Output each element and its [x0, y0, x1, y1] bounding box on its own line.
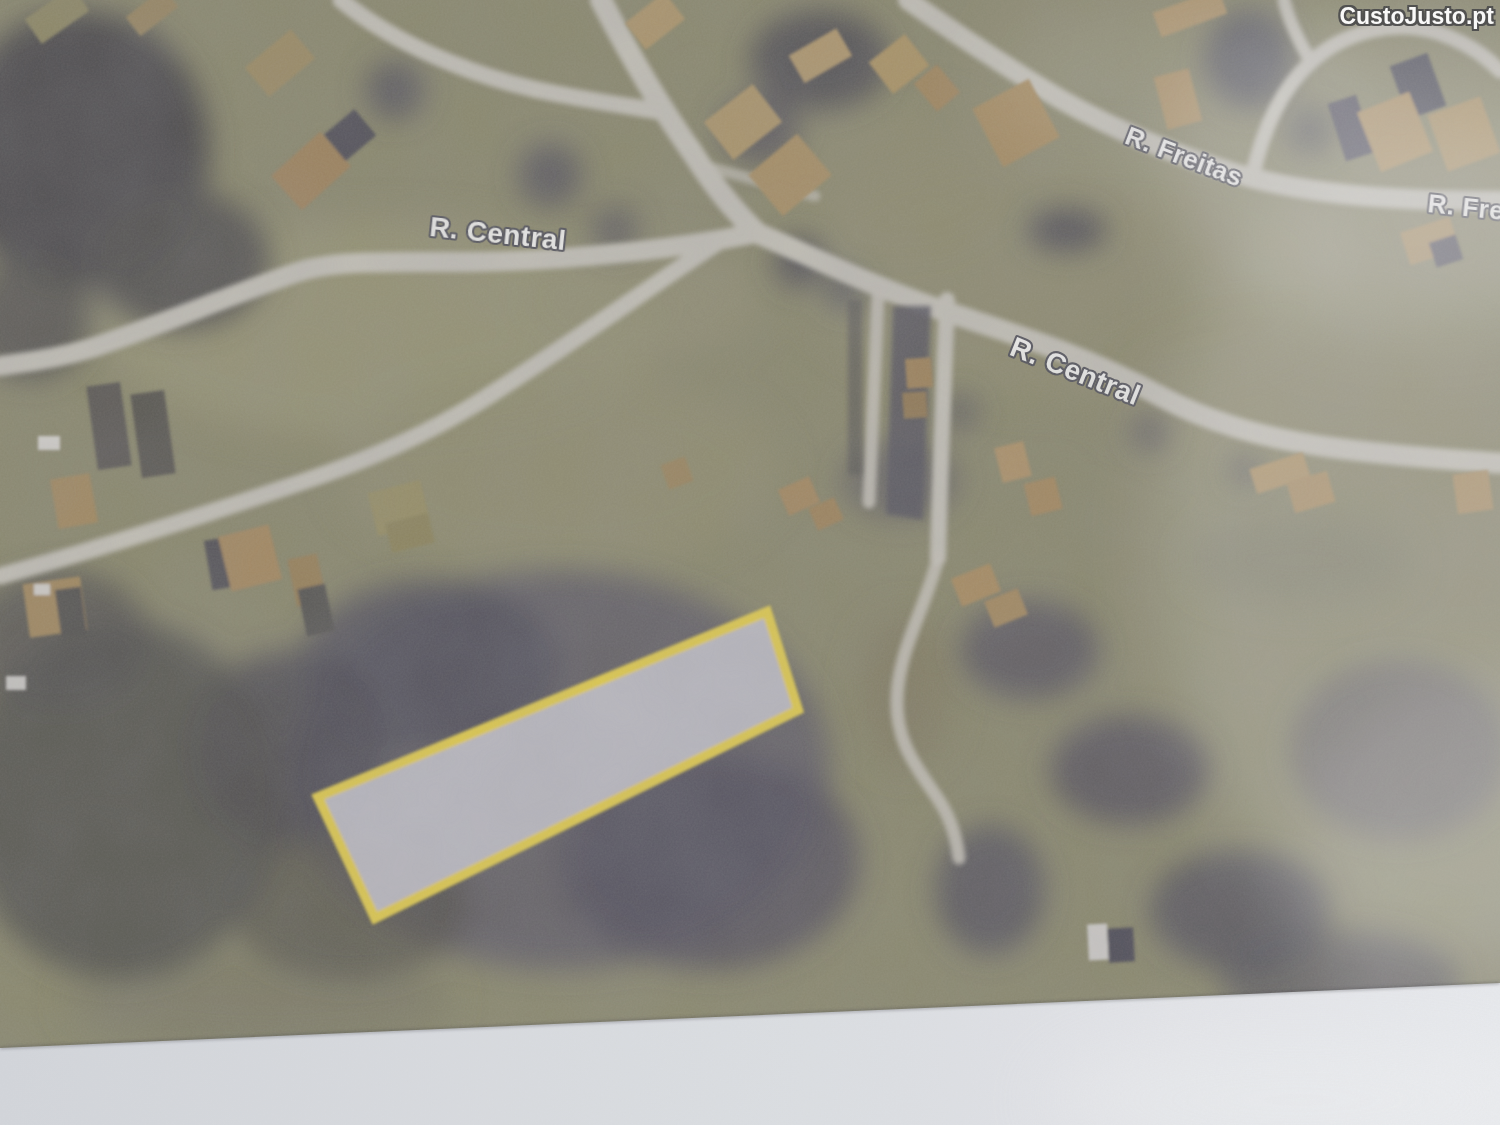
- custojusto-watermark: CustoJusto.pt: [1339, 3, 1494, 30]
- aerial-map-photo: R. Central R. Freitas R. Fre R. Central …: [0, 0, 1500, 1125]
- photo-grain: [0, 0, 1500, 1125]
- aerial-map-canvas: R. Central R. Freitas R. Fre R. Central: [0, 0, 1500, 1125]
